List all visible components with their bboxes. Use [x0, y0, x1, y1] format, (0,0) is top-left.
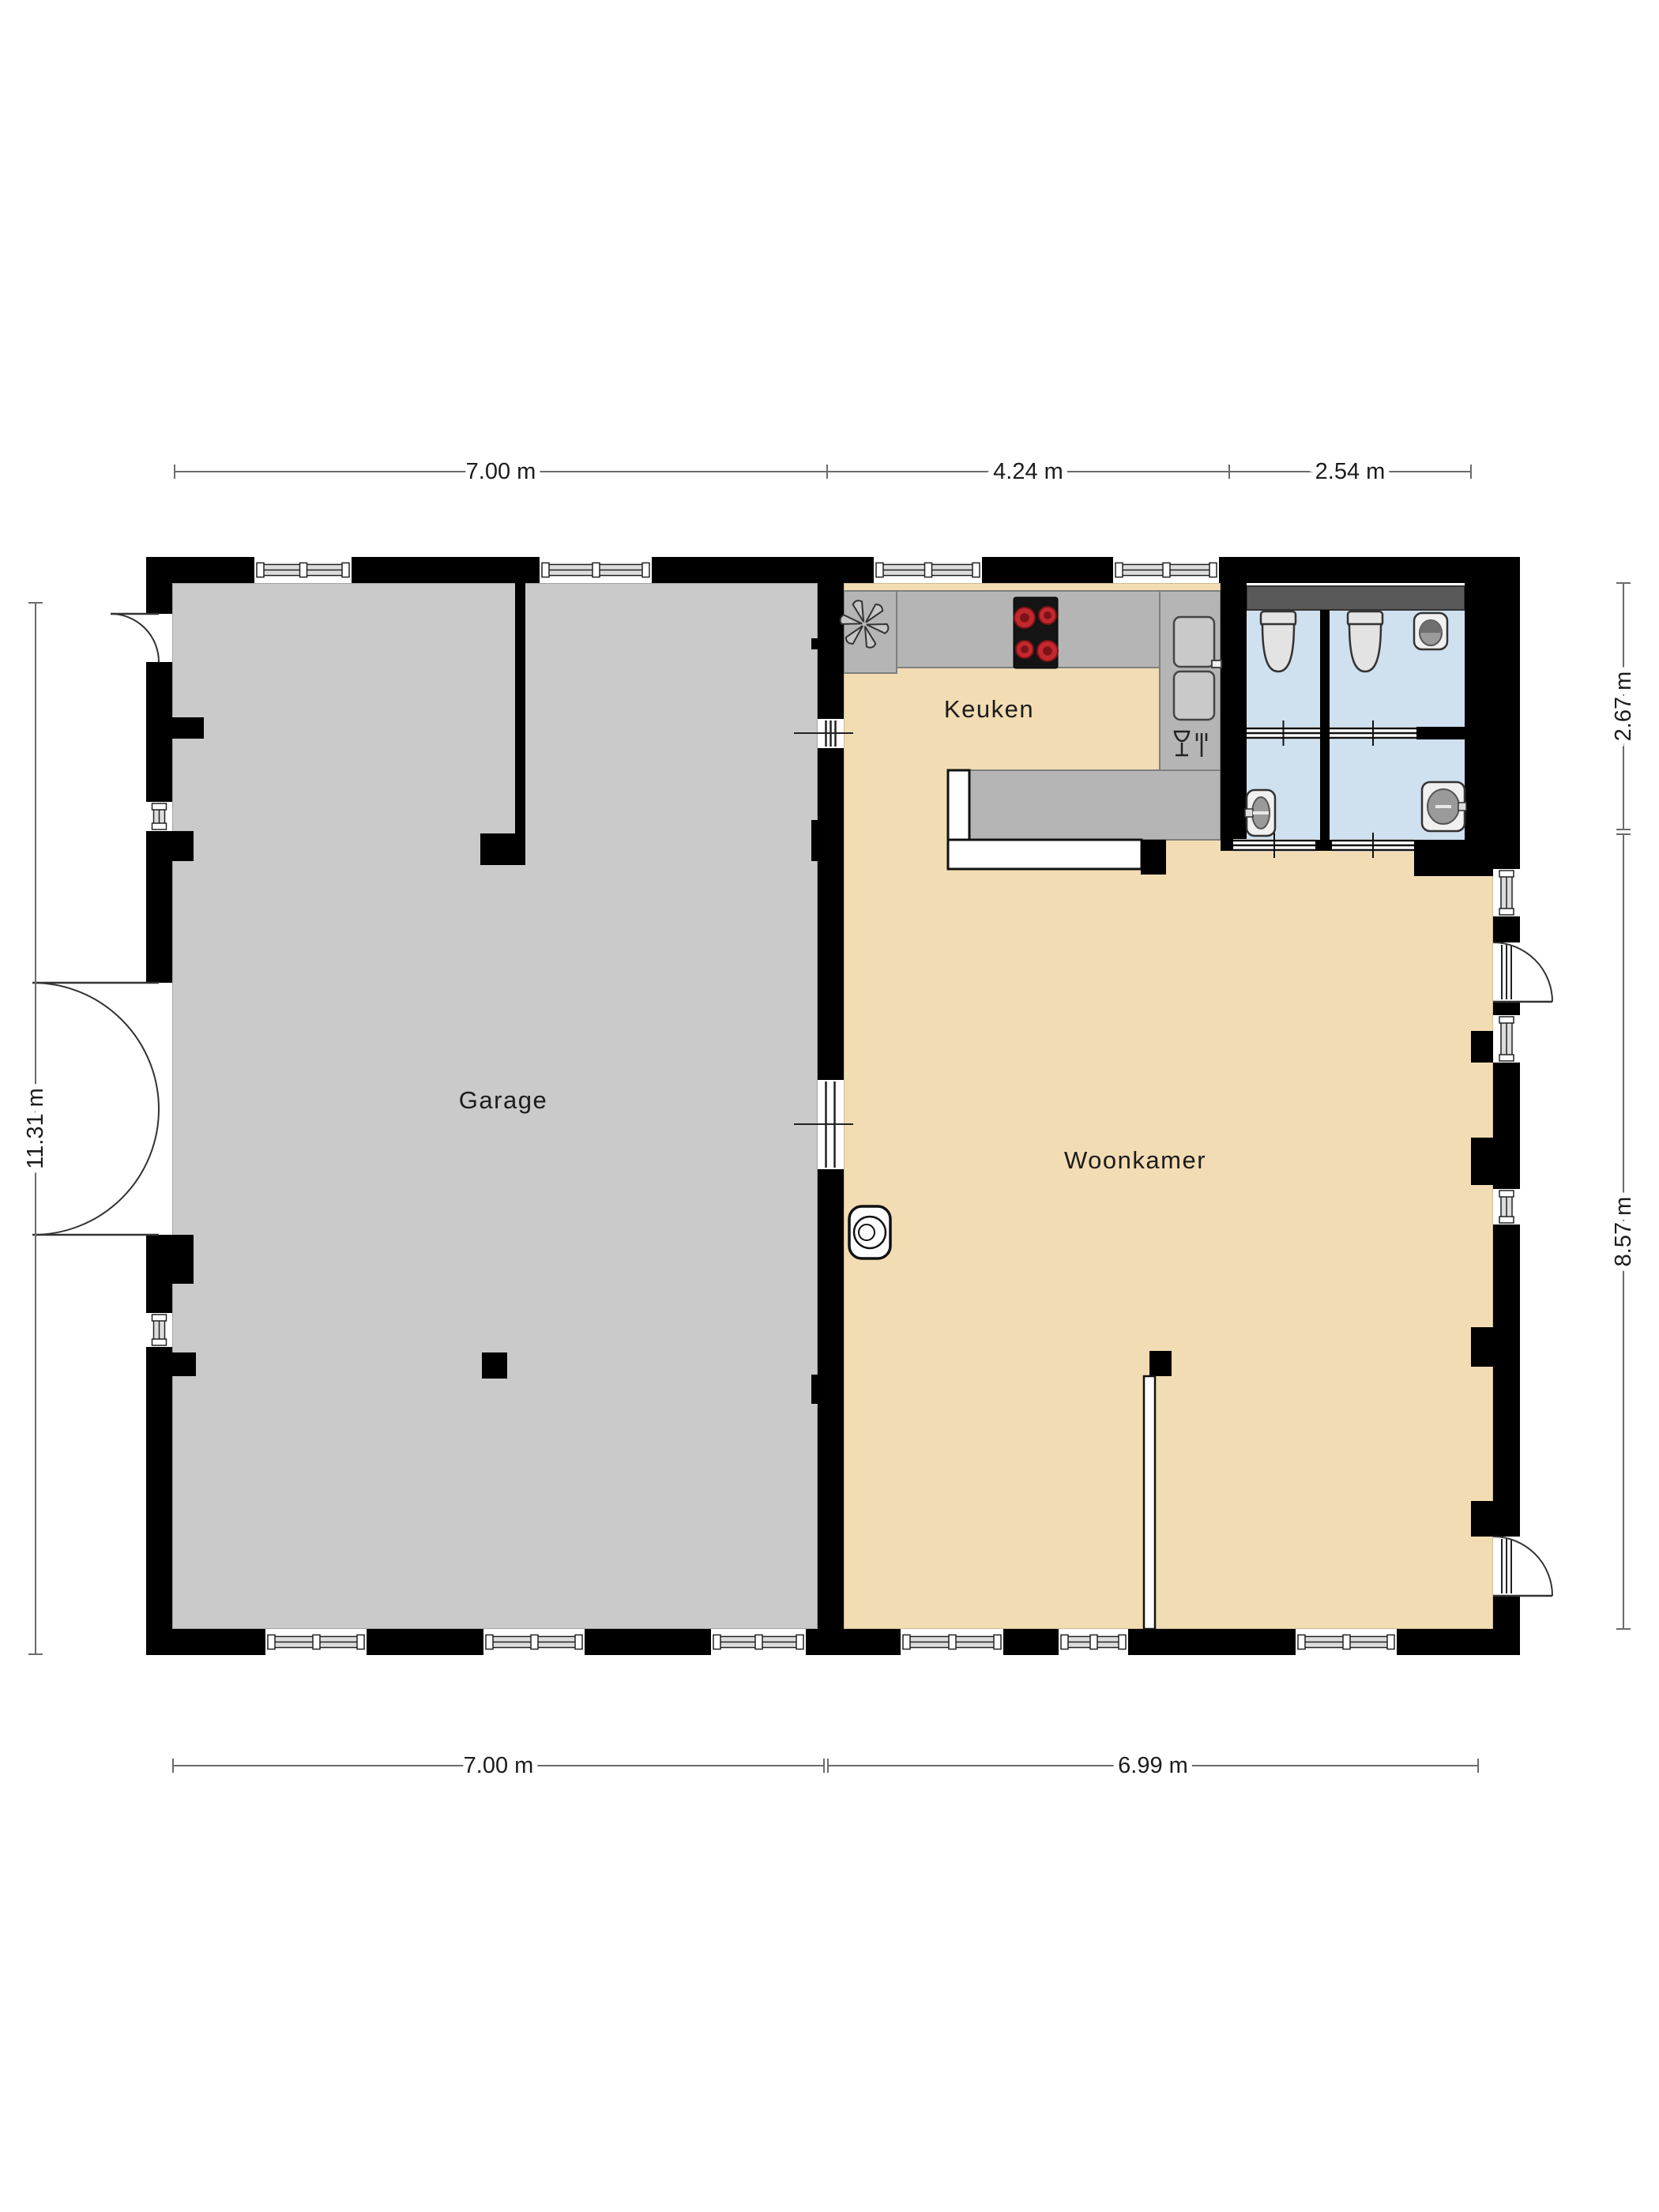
- wall-pier: [1471, 1031, 1493, 1063]
- wall: [1315, 840, 1332, 851]
- wall-pier: [811, 820, 844, 861]
- window-post: [486, 1635, 493, 1650]
- window-post: [257, 563, 264, 577]
- window-post: [972, 563, 980, 577]
- bar-counter: [948, 840, 1142, 869]
- wall-pier: [1471, 1501, 1493, 1537]
- dimension-label: 8.57 m: [1611, 1197, 1636, 1267]
- wall: [1493, 557, 1520, 869]
- wall: [146, 1235, 194, 1284]
- window-post: [592, 563, 600, 577]
- window-post: [755, 1635, 762, 1650]
- wall: [1141, 840, 1166, 875]
- window-post: [1387, 1635, 1394, 1650]
- window-post: [876, 563, 883, 577]
- stove-cooktop: [1014, 597, 1058, 668]
- wall: [1003, 1629, 1059, 1655]
- wall: [1320, 610, 1330, 840]
- wall: [982, 557, 1113, 583]
- window-post: [575, 1635, 582, 1650]
- window-post: [1499, 908, 1514, 915]
- swing-door: [111, 614, 172, 662]
- wall-pier: [172, 831, 194, 861]
- floorplan-page: GarageKeukenWoonkamer7.00 m4.24 m2.54 m7…: [0, 0, 1659, 2212]
- window-post: [342, 563, 349, 577]
- wall-pier: [1471, 1327, 1493, 1367]
- door-opening: [146, 614, 172, 662]
- window-post: [268, 1635, 275, 1650]
- wall: [1493, 1224, 1520, 1537]
- wall: [146, 662, 172, 802]
- window-post: [152, 823, 167, 829]
- window-post: [1343, 1635, 1350, 1650]
- window-post: [1499, 871, 1514, 877]
- window: [1113, 557, 1219, 583]
- swing-door: [1493, 1537, 1552, 1596]
- wall: [818, 557, 844, 719]
- wall: [1416, 727, 1465, 739]
- window-post: [1499, 1217, 1514, 1223]
- window-post: [1209, 563, 1217, 577]
- thin-partition-wall: [1144, 1376, 1155, 1629]
- dimension-label: 7.00 m: [464, 1753, 534, 1778]
- window: [1493, 1015, 1520, 1063]
- boiler-unit: [849, 1206, 890, 1258]
- window-post: [1090, 1635, 1097, 1650]
- window-post: [994, 1635, 1001, 1650]
- wall: [146, 557, 172, 614]
- dimension-label: 2.67 m: [1611, 671, 1636, 742]
- wall: [1493, 1596, 1520, 1655]
- wall-pier: [811, 1375, 844, 1404]
- wall: [818, 748, 844, 1080]
- room-label: Woonkamer: [1064, 1146, 1206, 1174]
- wall: [1221, 840, 1233, 851]
- window-post: [152, 803, 167, 810]
- window-post: [300, 563, 307, 577]
- window-post: [1499, 1017, 1514, 1023]
- window-post: [1115, 563, 1123, 577]
- faucet: [1212, 660, 1221, 668]
- door-swing-arc: [32, 983, 159, 1109]
- window-post: [903, 1635, 910, 1650]
- window-post: [1499, 1055, 1514, 1061]
- window-post: [542, 563, 549, 577]
- wall: [146, 831, 172, 983]
- window-post: [313, 1635, 320, 1650]
- kitchen-counter: [844, 591, 897, 673]
- sink-basin: [1174, 671, 1214, 720]
- wall: [1128, 1629, 1296, 1655]
- dimension-label: 11.31 m: [23, 1088, 48, 1169]
- window: [540, 557, 652, 583]
- window: [146, 1313, 172, 1347]
- window-post: [713, 1635, 720, 1650]
- window-post: [1119, 1635, 1126, 1650]
- pillar: [482, 1352, 507, 1379]
- swing-door: [32, 1109, 159, 1235]
- wall: [146, 1284, 172, 1313]
- window-post: [1163, 563, 1170, 577]
- bathroom-sink: [1245, 790, 1275, 836]
- bathroom-cabinet: [1247, 586, 1465, 610]
- bathroom-sink: [1422, 782, 1466, 831]
- wall: [1493, 1002, 1520, 1015]
- wall: [146, 1347, 172, 1655]
- faucet: [1458, 803, 1466, 811]
- wall-pier: [172, 1352, 196, 1376]
- wall: [1493, 1063, 1520, 1189]
- wall: [1414, 840, 1472, 876]
- dimension-label: 6.99 m: [1118, 1753, 1188, 1778]
- window: [711, 1629, 806, 1655]
- room-label: Garage: [459, 1086, 547, 1114]
- wall: [806, 1629, 901, 1655]
- window: [254, 557, 352, 583]
- window: [1493, 1189, 1520, 1224]
- window: [874, 557, 982, 583]
- dimension-label: 7.00 m: [466, 459, 536, 484]
- dimension-label: 4.24 m: [993, 459, 1063, 484]
- window-post: [1298, 1635, 1305, 1650]
- wall: [367, 1629, 483, 1655]
- window-post: [152, 1315, 167, 1321]
- window-post: [642, 563, 649, 577]
- floorplan-canvas: GarageKeukenWoonkamer7.00 m4.24 m2.54 m7…: [0, 0, 1659, 2212]
- kitchen-counter: [969, 770, 1221, 840]
- wall: [1219, 557, 1520, 583]
- wall: [515, 557, 525, 833]
- window: [146, 802, 172, 831]
- window: [1296, 1629, 1397, 1655]
- faucet: [1245, 809, 1253, 817]
- window-post: [1499, 1191, 1514, 1197]
- wall-pier: [1471, 1138, 1493, 1185]
- window-post: [949, 1635, 956, 1650]
- wall-pier: [172, 717, 204, 739]
- window-post: [152, 1339, 167, 1345]
- toilet-bowl: [1349, 624, 1381, 671]
- wall: [1221, 583, 1247, 840]
- window-post: [796, 1635, 803, 1650]
- window-post: [357, 1635, 364, 1650]
- sink-basin: [1174, 617, 1214, 667]
- swing-door: [1493, 942, 1552, 1002]
- window: [265, 1629, 367, 1655]
- wall: [585, 1629, 711, 1655]
- room-label: Keuken: [944, 695, 1034, 723]
- wall: [352, 557, 540, 583]
- wall-pier: [811, 638, 818, 649]
- wall: [1493, 916, 1520, 942]
- window-post: [925, 563, 932, 577]
- dimension-label: 2.54 m: [1315, 459, 1386, 484]
- urinal: [1414, 613, 1447, 649]
- swing-door: [32, 983, 172, 1235]
- wall: [1465, 583, 1493, 876]
- pillar: [1149, 1351, 1172, 1376]
- window: [483, 1629, 585, 1655]
- window: [1059, 1629, 1128, 1655]
- window: [1493, 869, 1520, 916]
- door-swing-arc: [32, 1109, 159, 1235]
- window: [901, 1629, 1003, 1655]
- wall: [480, 833, 525, 865]
- window-post: [531, 1635, 538, 1650]
- window-post: [1061, 1635, 1068, 1650]
- toilet-bowl: [1262, 624, 1294, 671]
